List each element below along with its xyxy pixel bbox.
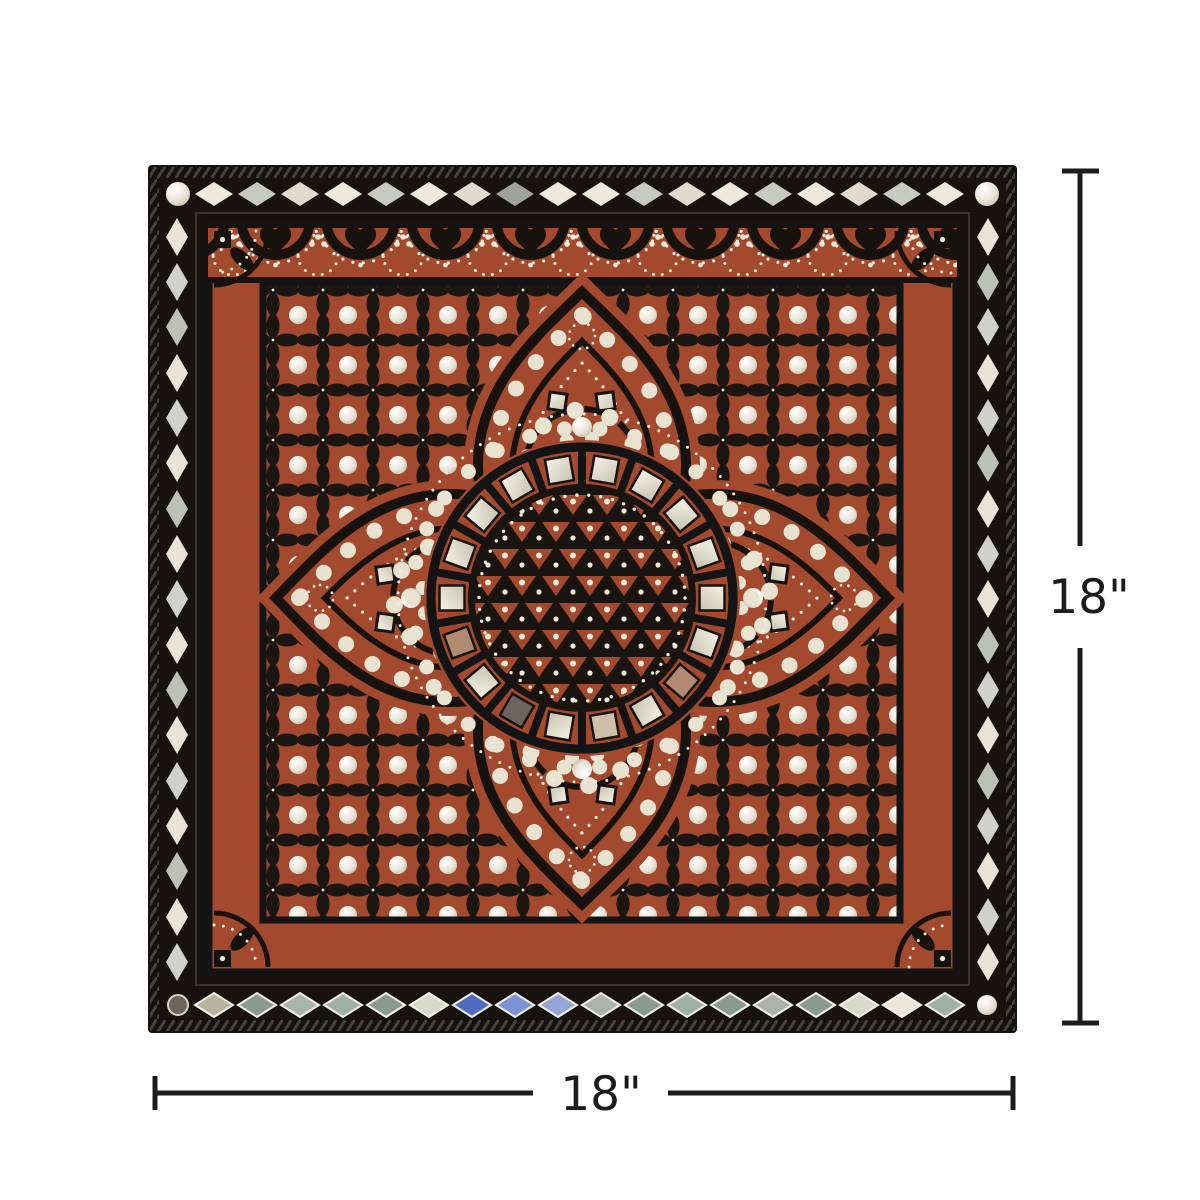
- dimension-annotations: 18" 18": [0, 0, 1200, 1200]
- product-dimension-image: 18" 18": [0, 0, 1200, 1200]
- width-dimension-label: 18": [560, 1067, 641, 1122]
- height-dimension-label: 18": [1048, 570, 1129, 625]
